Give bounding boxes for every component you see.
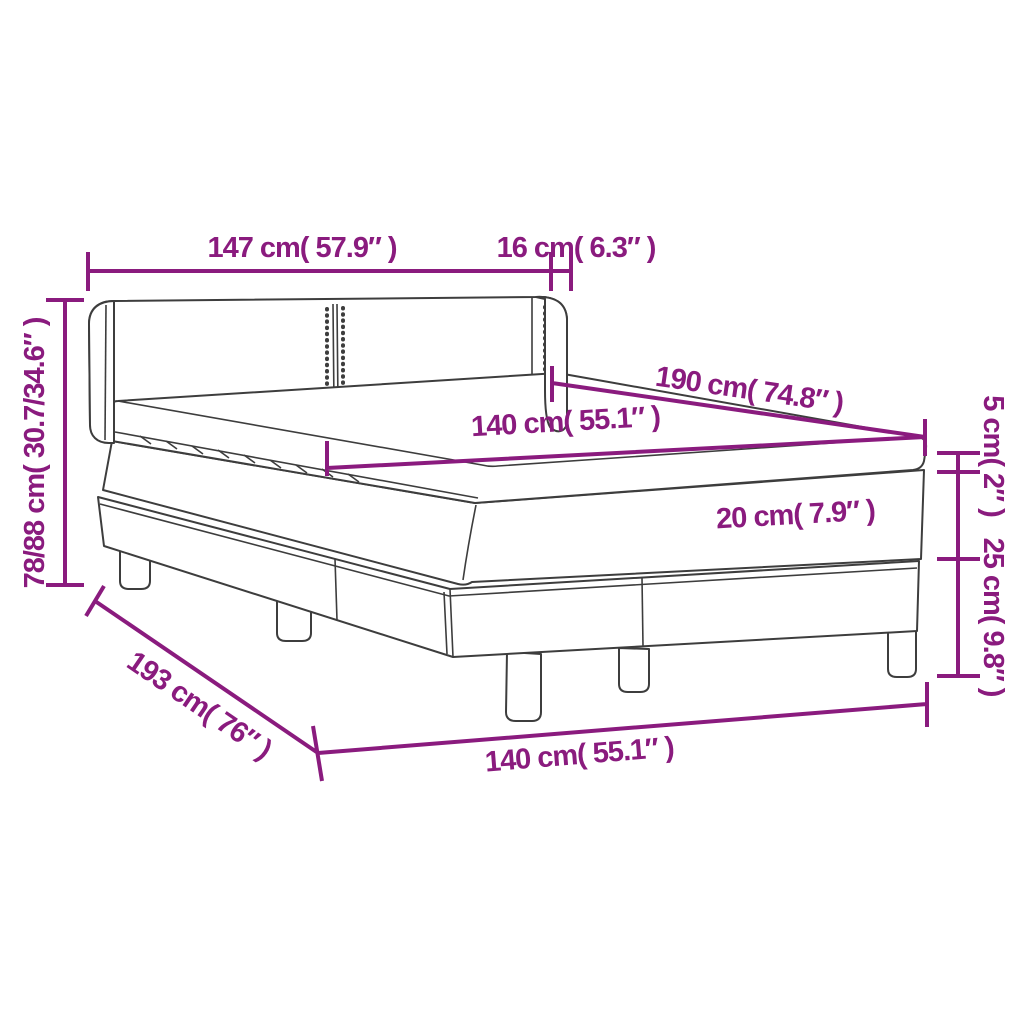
- bed-leg: [888, 628, 916, 677]
- dim-headboard-width-label: 147 cm( 57.9″ ): [207, 232, 396, 264]
- dim-headboard-width: 147 cm( 57.9″ ) 16 cm( 6.3″ ): [88, 232, 656, 291]
- dim-topper-height-label: 5 cm( 2″ ): [977, 395, 1009, 517]
- dim-height-label: 78/88 cm( 30.7/34.6″ ): [19, 317, 51, 588]
- left-wing-crease: [105, 305, 106, 440]
- bed-dimension-diagram-page: 147 cm( 57.9″ ) 16 cm( 6.3″ ) 78/88 cm( …: [0, 0, 1024, 1024]
- dim-total-length-label: 193 cm( 76″ ): [121, 645, 277, 766]
- bed-leg: [506, 652, 541, 721]
- dim-wing-depth-label: 16 cm( 6.3″ ): [497, 232, 656, 264]
- dim-base-height-label: 25 cm( 9.8″ ): [977, 538, 1009, 697]
- base-seam-foot: [642, 578, 643, 646]
- dim-right-bracket: 5 cm( 2″ ) 25 cm( 9.8″ ): [937, 395, 1009, 697]
- headboard-left-wing: [89, 301, 114, 443]
- bed-dimension-diagram: 147 cm( 57.9″ ) 16 cm( 6.3″ ) 78/88 cm( …: [0, 0, 1024, 1024]
- dim-width-bottom: 140 cm( 55.1″ ): [318, 682, 927, 779]
- dim-height-line: [46, 300, 84, 585]
- dim-right-bracket-lines: [937, 453, 980, 677]
- bed-leg: [619, 648, 649, 692]
- dim-height-left: 78/88 cm( 30.7/34.6″ ): [19, 300, 84, 588]
